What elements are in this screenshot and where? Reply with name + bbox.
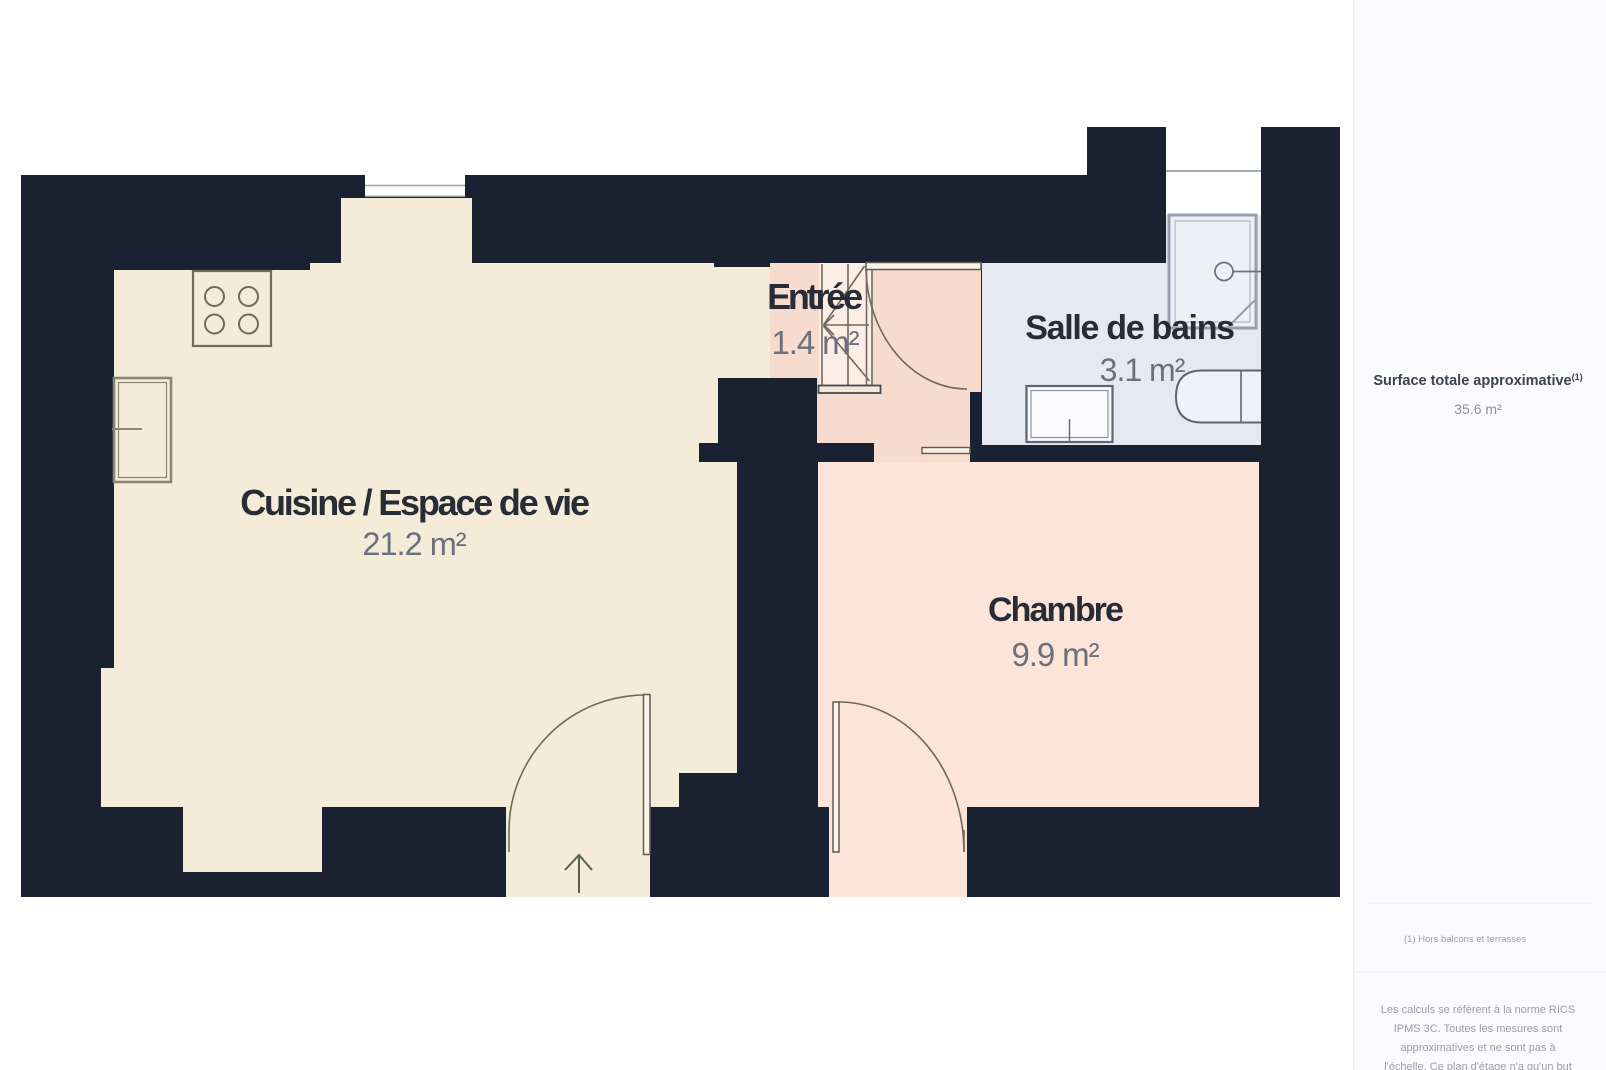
svg-text:Les calculs se réfèrent à la n: Les calculs se réfèrent à la norme RICS xyxy=(1381,1004,1575,1016)
svg-text:(1) Hors balcons et terrasses: (1) Hors balcons et terrasses xyxy=(1404,934,1526,945)
svg-text:Entrée: Entrée xyxy=(767,276,862,317)
svg-text:9.9 m²: 9.9 m² xyxy=(1012,636,1100,673)
svg-text:35.6 m²: 35.6 m² xyxy=(1454,401,1502,417)
svg-text:l'échelle. Ce plan d'étage n'a: l'échelle. Ce plan d'étage n'a qu'un but xyxy=(1384,1061,1572,1070)
svg-text:1.4 m²: 1.4 m² xyxy=(772,324,860,361)
svg-text:Salle de bains: Salle de bains xyxy=(1025,309,1234,347)
svg-text:Cuisine / Espace de vie: Cuisine / Espace de vie xyxy=(240,482,589,523)
svg-text:approximatives et ne sont pas: approximatives et ne sont pas à xyxy=(1400,1042,1556,1054)
svg-text:IPMS 3C. Toutes les mesures so: IPMS 3C. Toutes les mesures sont xyxy=(1394,1023,1563,1035)
svg-text:Chambre: Chambre xyxy=(988,591,1123,629)
svg-text:21.2 m²: 21.2 m² xyxy=(362,526,466,562)
svg-text:Surface totale approximative(1: Surface totale approximative(1) xyxy=(1373,372,1582,389)
svg-text:3.1 m²: 3.1 m² xyxy=(1100,352,1186,388)
